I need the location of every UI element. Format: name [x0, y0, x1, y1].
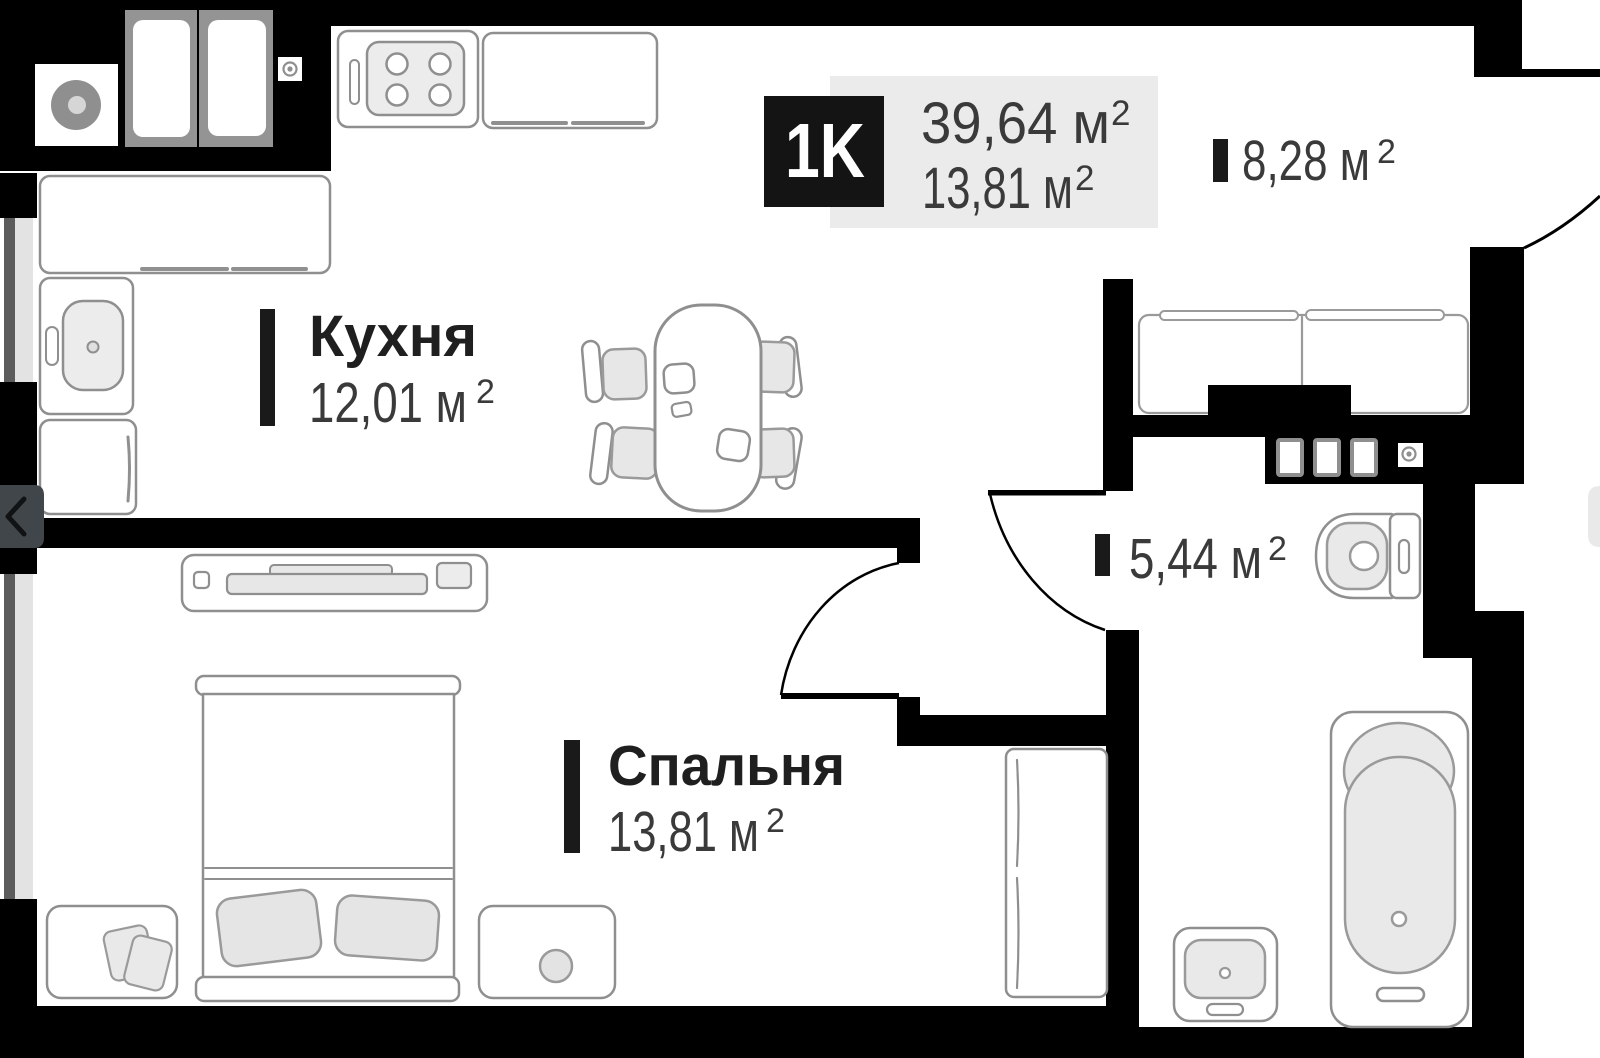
svg-text:2: 2 [1075, 159, 1094, 198]
svg-text:Кухня: Кухня [309, 304, 477, 369]
svg-text:2: 2 [766, 802, 785, 840]
svg-text:Спальня: Спальня [608, 734, 845, 798]
svg-text:13,81 м: 13,81 м [922, 156, 1073, 221]
svg-text:2: 2 [476, 373, 495, 411]
svg-text:39,64 м: 39,64 м [921, 91, 1110, 156]
svg-text:13,81 м: 13,81 м [608, 800, 759, 864]
svg-text:12,01 м: 12,01 м [309, 371, 467, 435]
svg-text:2: 2 [1377, 133, 1396, 171]
svg-text:2: 2 [1268, 530, 1287, 568]
svg-text:8,28 м: 8,28 м [1242, 129, 1370, 193]
svg-text:5,44 м: 5,44 м [1129, 527, 1262, 591]
svg-text:2: 2 [1111, 94, 1130, 133]
svg-text:1K: 1K [785, 108, 865, 194]
